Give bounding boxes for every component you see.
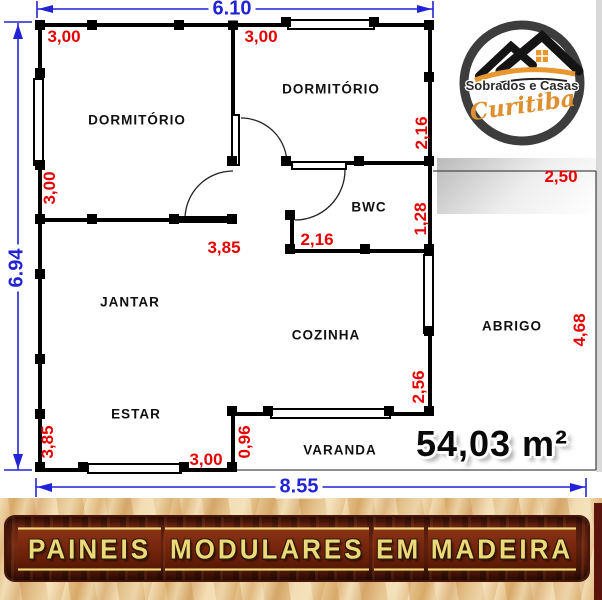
wall-post bbox=[35, 160, 45, 170]
wall-post bbox=[179, 462, 189, 472]
total-area-label: 54,03 m² bbox=[416, 423, 568, 465]
room-label-dormitorio-1: DORMITÓRIO bbox=[88, 113, 186, 128]
floor-plan-page: DORMITÓRIO DORMITÓRIO BWC JANTAR COZINHA… bbox=[0, 0, 602, 600]
dim-red-bottom: 3,00 bbox=[189, 450, 222, 470]
company-logo: Sobrados e Casas Curitiba bbox=[455, 13, 595, 157]
wall-post bbox=[285, 210, 295, 220]
wall-segment bbox=[38, 218, 179, 222]
window bbox=[423, 254, 434, 334]
dim-red-top-mid: 3,00 bbox=[244, 27, 277, 47]
wall-post bbox=[227, 406, 237, 416]
dim-red-bwc-width: 2,16 bbox=[300, 230, 333, 250]
banner-word-madeira: MADEIRA bbox=[428, 527, 576, 570]
banner-right-strip bbox=[594, 503, 602, 600]
dim-red-varanda-left: 0,96 bbox=[235, 425, 255, 458]
room-label-cozinha: COZINHA bbox=[292, 328, 361, 343]
window bbox=[287, 19, 375, 30]
dim-height-left: 6.94 bbox=[6, 245, 29, 292]
dim-width-bottom: 8.55 bbox=[276, 476, 323, 499]
banner-word-paineis: PAINEIS bbox=[18, 527, 161, 570]
wall-post bbox=[354, 156, 364, 166]
wall-post bbox=[424, 72, 434, 82]
wall-segment bbox=[231, 23, 235, 116]
wall-post bbox=[35, 462, 45, 472]
dim-red-left-lower: 3,85 bbox=[38, 425, 58, 458]
dim-red-kitchen-right: 2,56 bbox=[409, 370, 429, 403]
wall-post bbox=[227, 214, 237, 224]
wall-post bbox=[281, 17, 291, 27]
wall-post bbox=[87, 20, 97, 30]
door-leaf-bwc bbox=[291, 161, 347, 170]
wall-post bbox=[35, 409, 45, 419]
wall-post bbox=[35, 354, 45, 364]
wall-post bbox=[87, 214, 97, 224]
room-label-jantar: JANTAR bbox=[100, 295, 160, 310]
window bbox=[33, 78, 44, 166]
window bbox=[87, 463, 182, 474]
dim-width-top: 6.10 bbox=[209, 0, 256, 21]
room-label-varanda: VARANDA bbox=[303, 443, 377, 458]
banner-word-modulares: MODULARES bbox=[165, 527, 369, 570]
wall-post bbox=[263, 406, 273, 416]
banner-word-em: EM bbox=[374, 527, 424, 570]
wall-post bbox=[424, 20, 434, 30]
wall-post bbox=[360, 244, 370, 254]
wall-post bbox=[35, 68, 45, 78]
wall-post bbox=[35, 269, 45, 279]
wall-post bbox=[35, 20, 45, 30]
room-label-bwc: BWC bbox=[351, 200, 386, 215]
wall-post bbox=[369, 17, 379, 27]
wall-post bbox=[227, 462, 237, 472]
room-label-estar: ESTAR bbox=[111, 407, 161, 422]
room-label-dormitorio-2: DORMITÓRIO bbox=[282, 82, 380, 97]
window bbox=[270, 408, 391, 419]
wall-post bbox=[78, 462, 88, 472]
wall-post bbox=[424, 244, 434, 254]
wall-post bbox=[285, 244, 295, 254]
dim-red-hall: 3,85 bbox=[207, 238, 240, 258]
wall-post bbox=[228, 20, 238, 30]
wall-post bbox=[424, 406, 434, 416]
banner-plank: PAINEIS MODULARES EM MADEIRA bbox=[6, 517, 588, 580]
wall-post bbox=[424, 326, 434, 336]
dim-red-abrigo-right: 4,68 bbox=[570, 313, 590, 346]
wall-post bbox=[281, 156, 291, 166]
dim-red-dorm2-right: 2,16 bbox=[412, 116, 432, 149]
dim-red-top-left: 3,00 bbox=[47, 27, 80, 47]
wall-post bbox=[35, 214, 45, 224]
dim-red-bwc-right: 1,28 bbox=[411, 202, 431, 235]
wall-post bbox=[384, 406, 394, 416]
wood-banner: PAINEIS MODULARES EM MADEIRA bbox=[0, 498, 602, 600]
dim-red-left-upper: 3,00 bbox=[40, 171, 60, 204]
dim-red-abrigo-top: 2,50 bbox=[544, 167, 577, 187]
room-label-abrigo: ABRIGO bbox=[482, 319, 542, 334]
wall-post bbox=[169, 214, 179, 224]
wall-post bbox=[174, 20, 184, 30]
wall-post bbox=[424, 156, 434, 166]
wall-post bbox=[227, 156, 237, 166]
floor-plan-canvas: DORMITÓRIO DORMITÓRIO BWC JANTAR COZINHA… bbox=[0, 0, 602, 498]
